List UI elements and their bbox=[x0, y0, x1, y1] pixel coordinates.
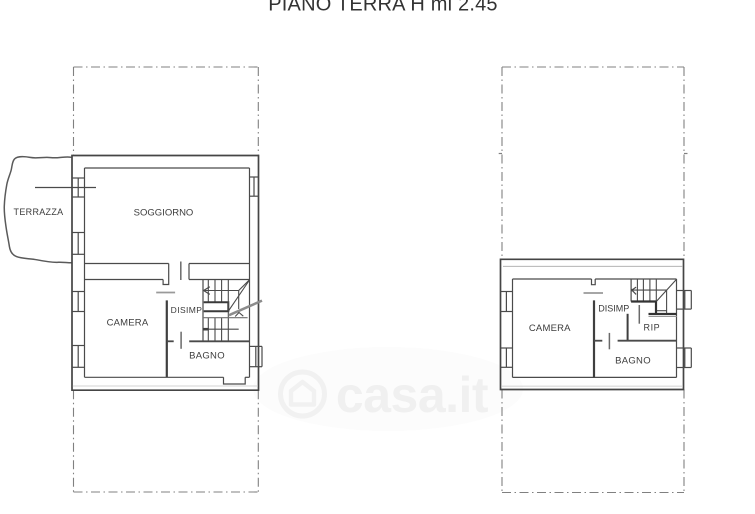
svg-text:RIP: RIP bbox=[643, 322, 660, 332]
svg-text:PIANO TERRA H ml 2.45: PIANO TERRA H ml 2.45 bbox=[268, 0, 497, 16]
svg-text:DISIMP: DISIMP bbox=[171, 305, 203, 315]
svg-text:TERRAZZA: TERRAZZA bbox=[14, 207, 64, 217]
svg-text:CAMERA: CAMERA bbox=[529, 323, 571, 334]
svg-text:CAMERA: CAMERA bbox=[107, 318, 149, 329]
svg-text:BAGNO: BAGNO bbox=[615, 356, 651, 367]
svg-text:casa.it: casa.it bbox=[336, 367, 489, 423]
svg-text:BAGNO: BAGNO bbox=[189, 351, 225, 362]
svg-text:DISIMP: DISIMP bbox=[598, 304, 629, 314]
svg-text:SOGGIORNO: SOGGIORNO bbox=[134, 208, 194, 219]
